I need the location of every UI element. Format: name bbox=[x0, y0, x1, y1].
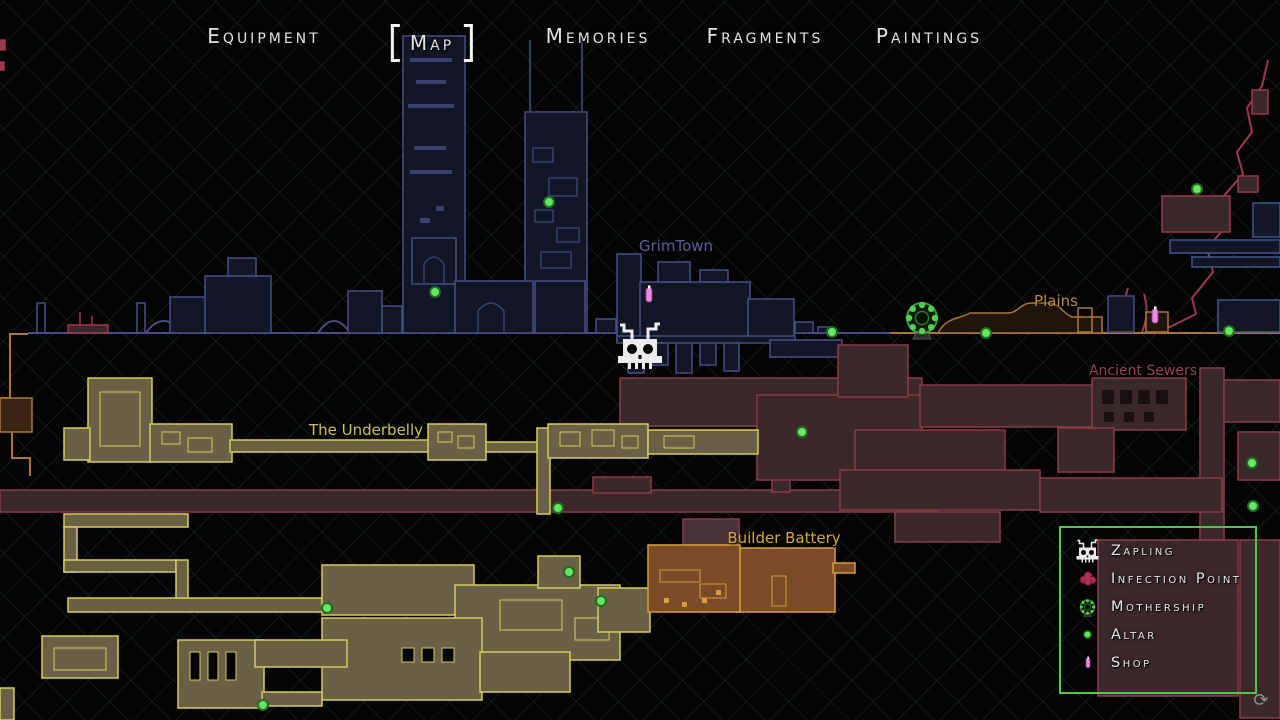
map-structure bbox=[920, 385, 1095, 427]
map-structure bbox=[170, 297, 208, 333]
legend-label: Infection Point bbox=[1111, 571, 1241, 587]
selected-bracket-right bbox=[464, 24, 473, 62]
map-structure bbox=[535, 281, 585, 333]
legend-item-mothership: Mothership bbox=[1074, 596, 1255, 617]
map-structure bbox=[230, 440, 430, 452]
map-structure bbox=[895, 512, 1000, 542]
map-structure bbox=[0, 398, 32, 432]
map-structure bbox=[42, 636, 118, 678]
map-structure bbox=[416, 80, 446, 84]
map-structure bbox=[833, 563, 855, 573]
tab-label: Map bbox=[405, 31, 459, 55]
map-structure bbox=[322, 565, 474, 615]
map-structure bbox=[455, 281, 533, 333]
map-structure bbox=[676, 343, 692, 373]
region-label-the-underbelly: The Underbelly bbox=[308, 421, 423, 439]
map-structure bbox=[596, 319, 616, 333]
infection-icon bbox=[1074, 570, 1101, 588]
tab-memories[interactable]: Memories bbox=[541, 24, 656, 48]
boat bbox=[68, 325, 108, 333]
map-structure bbox=[548, 424, 648, 458]
marker-altar bbox=[797, 427, 807, 437]
map-structure bbox=[1238, 432, 1280, 480]
marker-altar bbox=[596, 596, 606, 606]
underbelly-block bbox=[88, 378, 152, 462]
marker-altar bbox=[258, 700, 268, 710]
map-structure bbox=[422, 648, 434, 662]
marker-altar bbox=[1192, 184, 1202, 194]
region-label-grimtown: GrimTown bbox=[639, 237, 713, 255]
map-structure bbox=[1192, 257, 1280, 267]
shop-icon bbox=[1074, 655, 1101, 671]
map-structure bbox=[402, 648, 414, 662]
tab-map[interactable]: Map bbox=[391, 24, 473, 62]
zapling-icon bbox=[1074, 539, 1101, 563]
map-structure bbox=[840, 470, 1040, 510]
map-structure bbox=[1170, 240, 1280, 253]
map-structure bbox=[0, 688, 14, 720]
map-structure bbox=[420, 218, 430, 223]
map-structure bbox=[318, 321, 350, 333]
map-structure bbox=[64, 514, 188, 527]
legend-label: Mothership bbox=[1111, 599, 1206, 615]
map-structure bbox=[1200, 368, 1224, 540]
map-structure bbox=[486, 442, 538, 452]
map-structure bbox=[414, 146, 446, 150]
map-structure bbox=[1102, 390, 1114, 404]
tab-fragments[interactable]: Fragments bbox=[702, 24, 829, 48]
grimtown-main bbox=[640, 282, 750, 340]
region-label-plains: Plains bbox=[1034, 292, 1078, 310]
map-structure bbox=[855, 430, 1005, 472]
map-structure bbox=[1124, 412, 1134, 422]
map-structure bbox=[658, 262, 690, 282]
map-structure bbox=[1138, 390, 1150, 404]
map-structure bbox=[1040, 478, 1222, 512]
map-structure bbox=[442, 648, 454, 662]
selected-bracket-left bbox=[391, 24, 400, 62]
map-structure bbox=[598, 588, 650, 632]
map-screen: { "tabs": [ {"label": "Equipment", "x": … bbox=[0, 0, 1280, 720]
map-structure bbox=[12, 432, 30, 476]
recenter-map-button[interactable]: ⟳ bbox=[1248, 690, 1274, 714]
map-structure bbox=[480, 652, 570, 692]
map-structure bbox=[1144, 412, 1154, 422]
marker-altar bbox=[322, 603, 332, 613]
map-structure bbox=[700, 270, 728, 282]
tab-label: Fragments bbox=[702, 24, 829, 48]
marker-altar bbox=[1248, 501, 1258, 511]
marker-shop bbox=[1152, 307, 1158, 324]
legend-label: Zapling bbox=[1111, 543, 1175, 559]
map-structure bbox=[64, 428, 90, 460]
legend-label: Shop bbox=[1111, 655, 1152, 671]
map-structure bbox=[348, 291, 382, 333]
map-structure bbox=[770, 340, 842, 357]
map-structure bbox=[68, 598, 324, 612]
map-structure bbox=[702, 598, 707, 603]
tab-label: Memories bbox=[541, 24, 656, 48]
tab-label: Equipment bbox=[202, 24, 325, 48]
map-structure bbox=[1238, 176, 1258, 192]
marker-altar bbox=[1247, 458, 1257, 468]
grimtown-tower bbox=[617, 254, 641, 340]
map-structure bbox=[262, 692, 322, 706]
map-structure bbox=[228, 258, 256, 276]
marker-altar bbox=[544, 197, 554, 207]
map-structure bbox=[410, 170, 452, 174]
map-structure bbox=[64, 560, 176, 572]
map-structure bbox=[1252, 90, 1268, 114]
lamp-post bbox=[37, 303, 45, 333]
map-structure bbox=[428, 424, 486, 460]
builder-battery-main bbox=[735, 548, 835, 612]
map-structure bbox=[748, 299, 794, 340]
legend-label: Altar bbox=[1111, 627, 1157, 643]
map-structure bbox=[1253, 203, 1280, 237]
map-structure bbox=[190, 652, 200, 680]
tab-label: Paintings bbox=[871, 24, 987, 48]
marker-shop bbox=[646, 286, 652, 303]
altar-icon bbox=[1074, 628, 1101, 641]
map-structure bbox=[1108, 296, 1134, 332]
map-structure bbox=[255, 640, 347, 667]
lamp-post bbox=[137, 303, 145, 333]
map-structure bbox=[408, 104, 454, 108]
marker-altar bbox=[827, 327, 837, 337]
sewers-corridor bbox=[0, 490, 938, 512]
map-structure bbox=[1104, 412, 1114, 422]
map-structure bbox=[226, 652, 236, 680]
legend-item-altar: Altar bbox=[1074, 624, 1255, 645]
map-structure bbox=[1224, 380, 1280, 422]
top-tab-bar: EquipmentMapMemoriesFragmentsPaintings bbox=[0, 0, 1280, 72]
map-structure bbox=[1058, 428, 1114, 472]
legend-item-shop: Shop bbox=[1074, 652, 1255, 673]
map-structure bbox=[838, 345, 908, 397]
map-structure bbox=[205, 276, 271, 333]
map-structure bbox=[664, 598, 669, 603]
map-structure bbox=[648, 545, 740, 612]
region-label-builder-battery: Builder Battery bbox=[727, 529, 840, 547]
map-structure bbox=[716, 590, 721, 595]
tab-paintings[interactable]: Paintings bbox=[871, 24, 987, 48]
map-structure bbox=[436, 206, 444, 211]
map-structure bbox=[208, 652, 218, 680]
map-structure bbox=[724, 343, 739, 371]
region-label-ancient-sewers: Ancient Sewers bbox=[1089, 363, 1197, 379]
map-legend: ZaplingInfection PointMothershipAltarSho… bbox=[1059, 526, 1257, 694]
map-structure bbox=[1156, 390, 1168, 404]
marker-altar bbox=[430, 287, 440, 297]
map-structure bbox=[700, 343, 716, 365]
mothership-icon bbox=[1074, 596, 1101, 617]
map-structure bbox=[682, 602, 687, 607]
map-structure bbox=[795, 322, 813, 333]
map-structure bbox=[593, 477, 651, 493]
legend-item-infection: Infection Point bbox=[1074, 568, 1255, 589]
marker-altar bbox=[553, 503, 563, 513]
map-structure bbox=[1162, 196, 1230, 232]
legend-item-zapling: Zapling bbox=[1074, 540, 1255, 561]
map-structure bbox=[1120, 390, 1132, 404]
marker-altar bbox=[1224, 326, 1234, 336]
tab-equipment[interactable]: Equipment bbox=[202, 24, 325, 48]
marker-altar bbox=[564, 567, 574, 577]
marker-altar bbox=[981, 328, 991, 338]
map-structure bbox=[382, 306, 402, 333]
